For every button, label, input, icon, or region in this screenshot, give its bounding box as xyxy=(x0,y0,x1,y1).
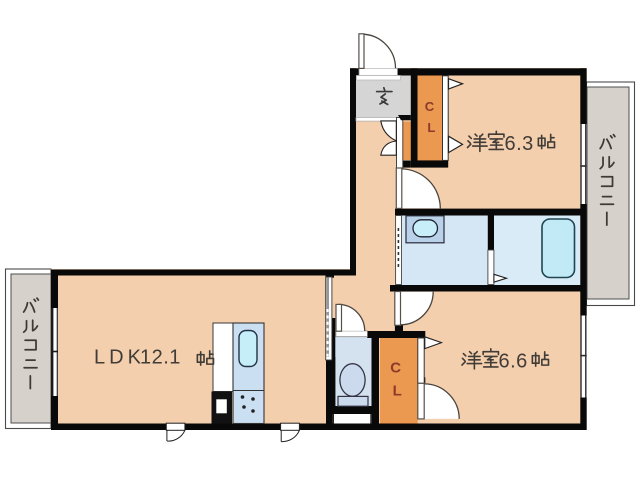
svg-text:12.1: 12.1 xyxy=(140,347,181,369)
svg-text:6.6: 6.6 xyxy=(499,351,528,373)
svg-text:6.3: 6.3 xyxy=(505,133,534,155)
svg-text:L: L xyxy=(393,382,402,399)
svg-text:C: C xyxy=(390,359,401,376)
svg-text:L: L xyxy=(427,120,435,135)
svg-text:LDK: LDK xyxy=(94,347,145,369)
svg-text:C: C xyxy=(425,99,435,114)
